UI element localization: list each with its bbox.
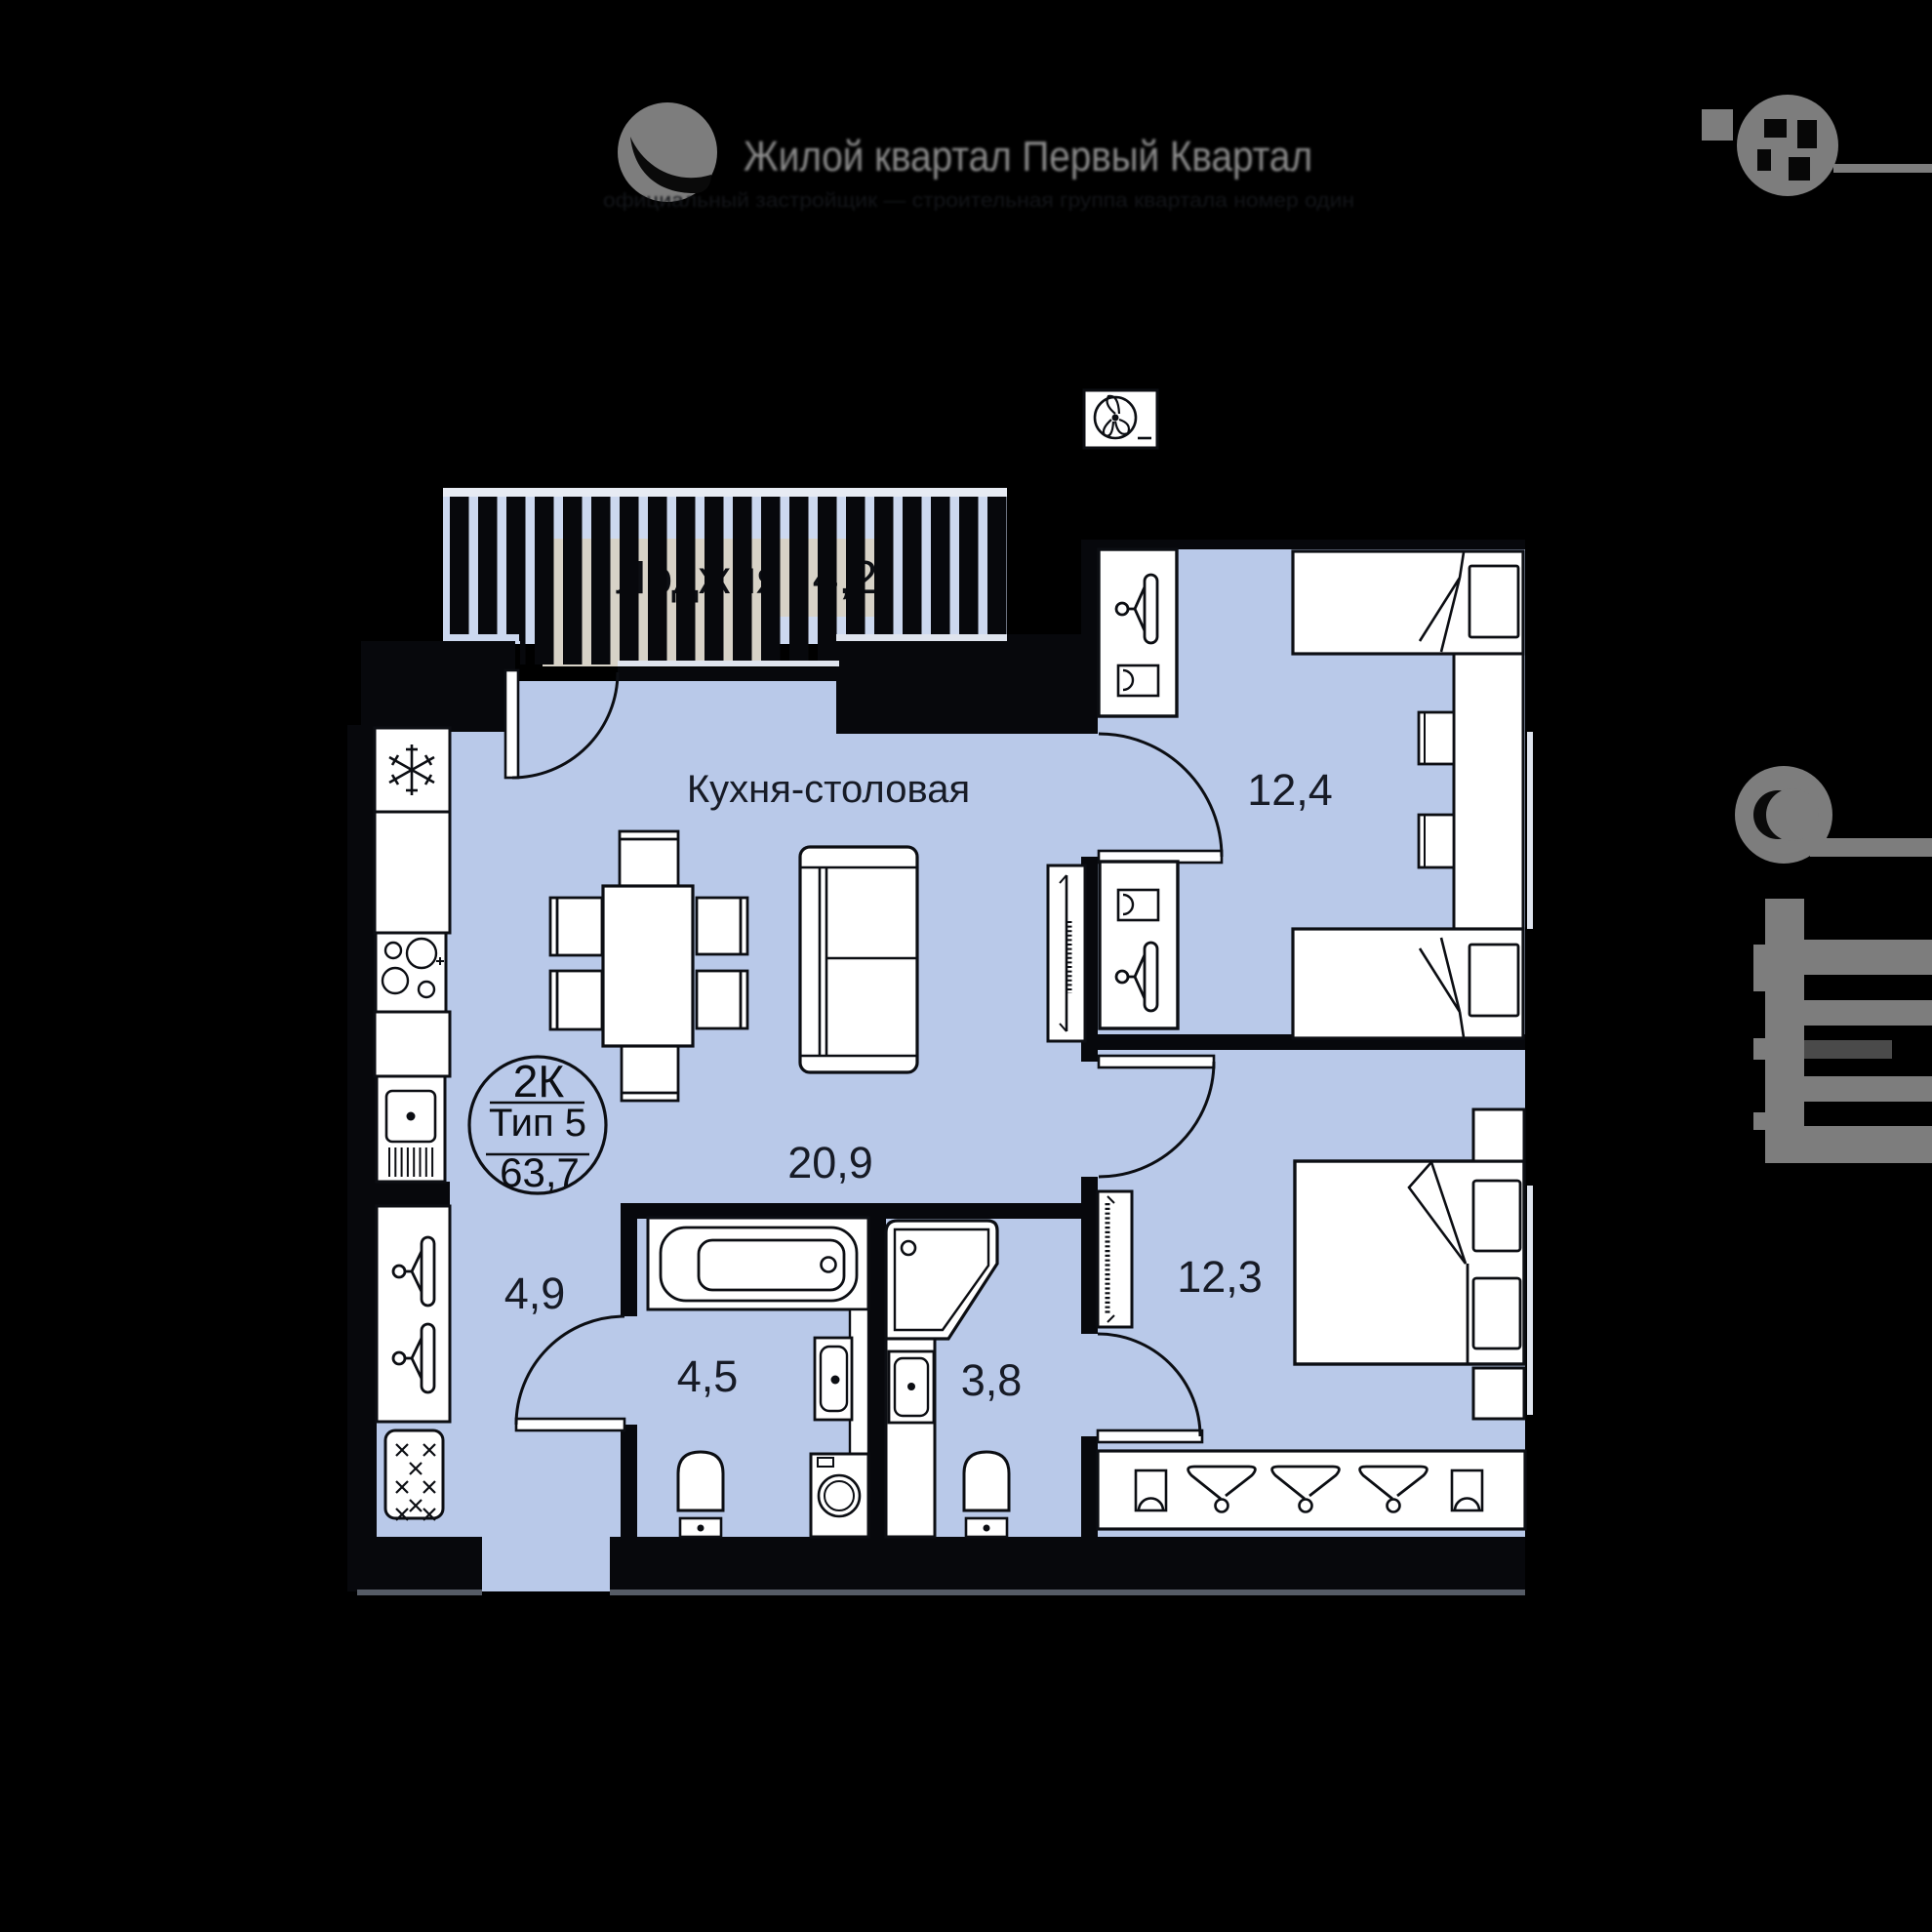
svg-text:3,8: 3,8 xyxy=(961,1355,1023,1405)
svg-text:20,9: 20,9 xyxy=(787,1138,873,1187)
svg-text:Кухня-столовая: Кухня-столовая xyxy=(687,768,970,811)
svg-text:4,9: 4,9 xyxy=(504,1268,566,1318)
svg-text:63,7: 63,7 xyxy=(500,1149,580,1195)
svg-text:Жилой квартал Первый Квартал: Жилой квартал Первый Квартал xyxy=(744,133,1312,181)
svg-text:Тип 5: Тип 5 xyxy=(489,1102,586,1145)
svg-text:12,3: 12,3 xyxy=(1177,1252,1263,1302)
svg-text:официальный застройщик — строи: официальный застройщик — строительная гр… xyxy=(603,190,1354,212)
svg-text:2К: 2К xyxy=(513,1056,565,1107)
svg-text:12,4: 12,4 xyxy=(1247,765,1333,815)
svg-text:4,5: 4,5 xyxy=(677,1351,739,1401)
